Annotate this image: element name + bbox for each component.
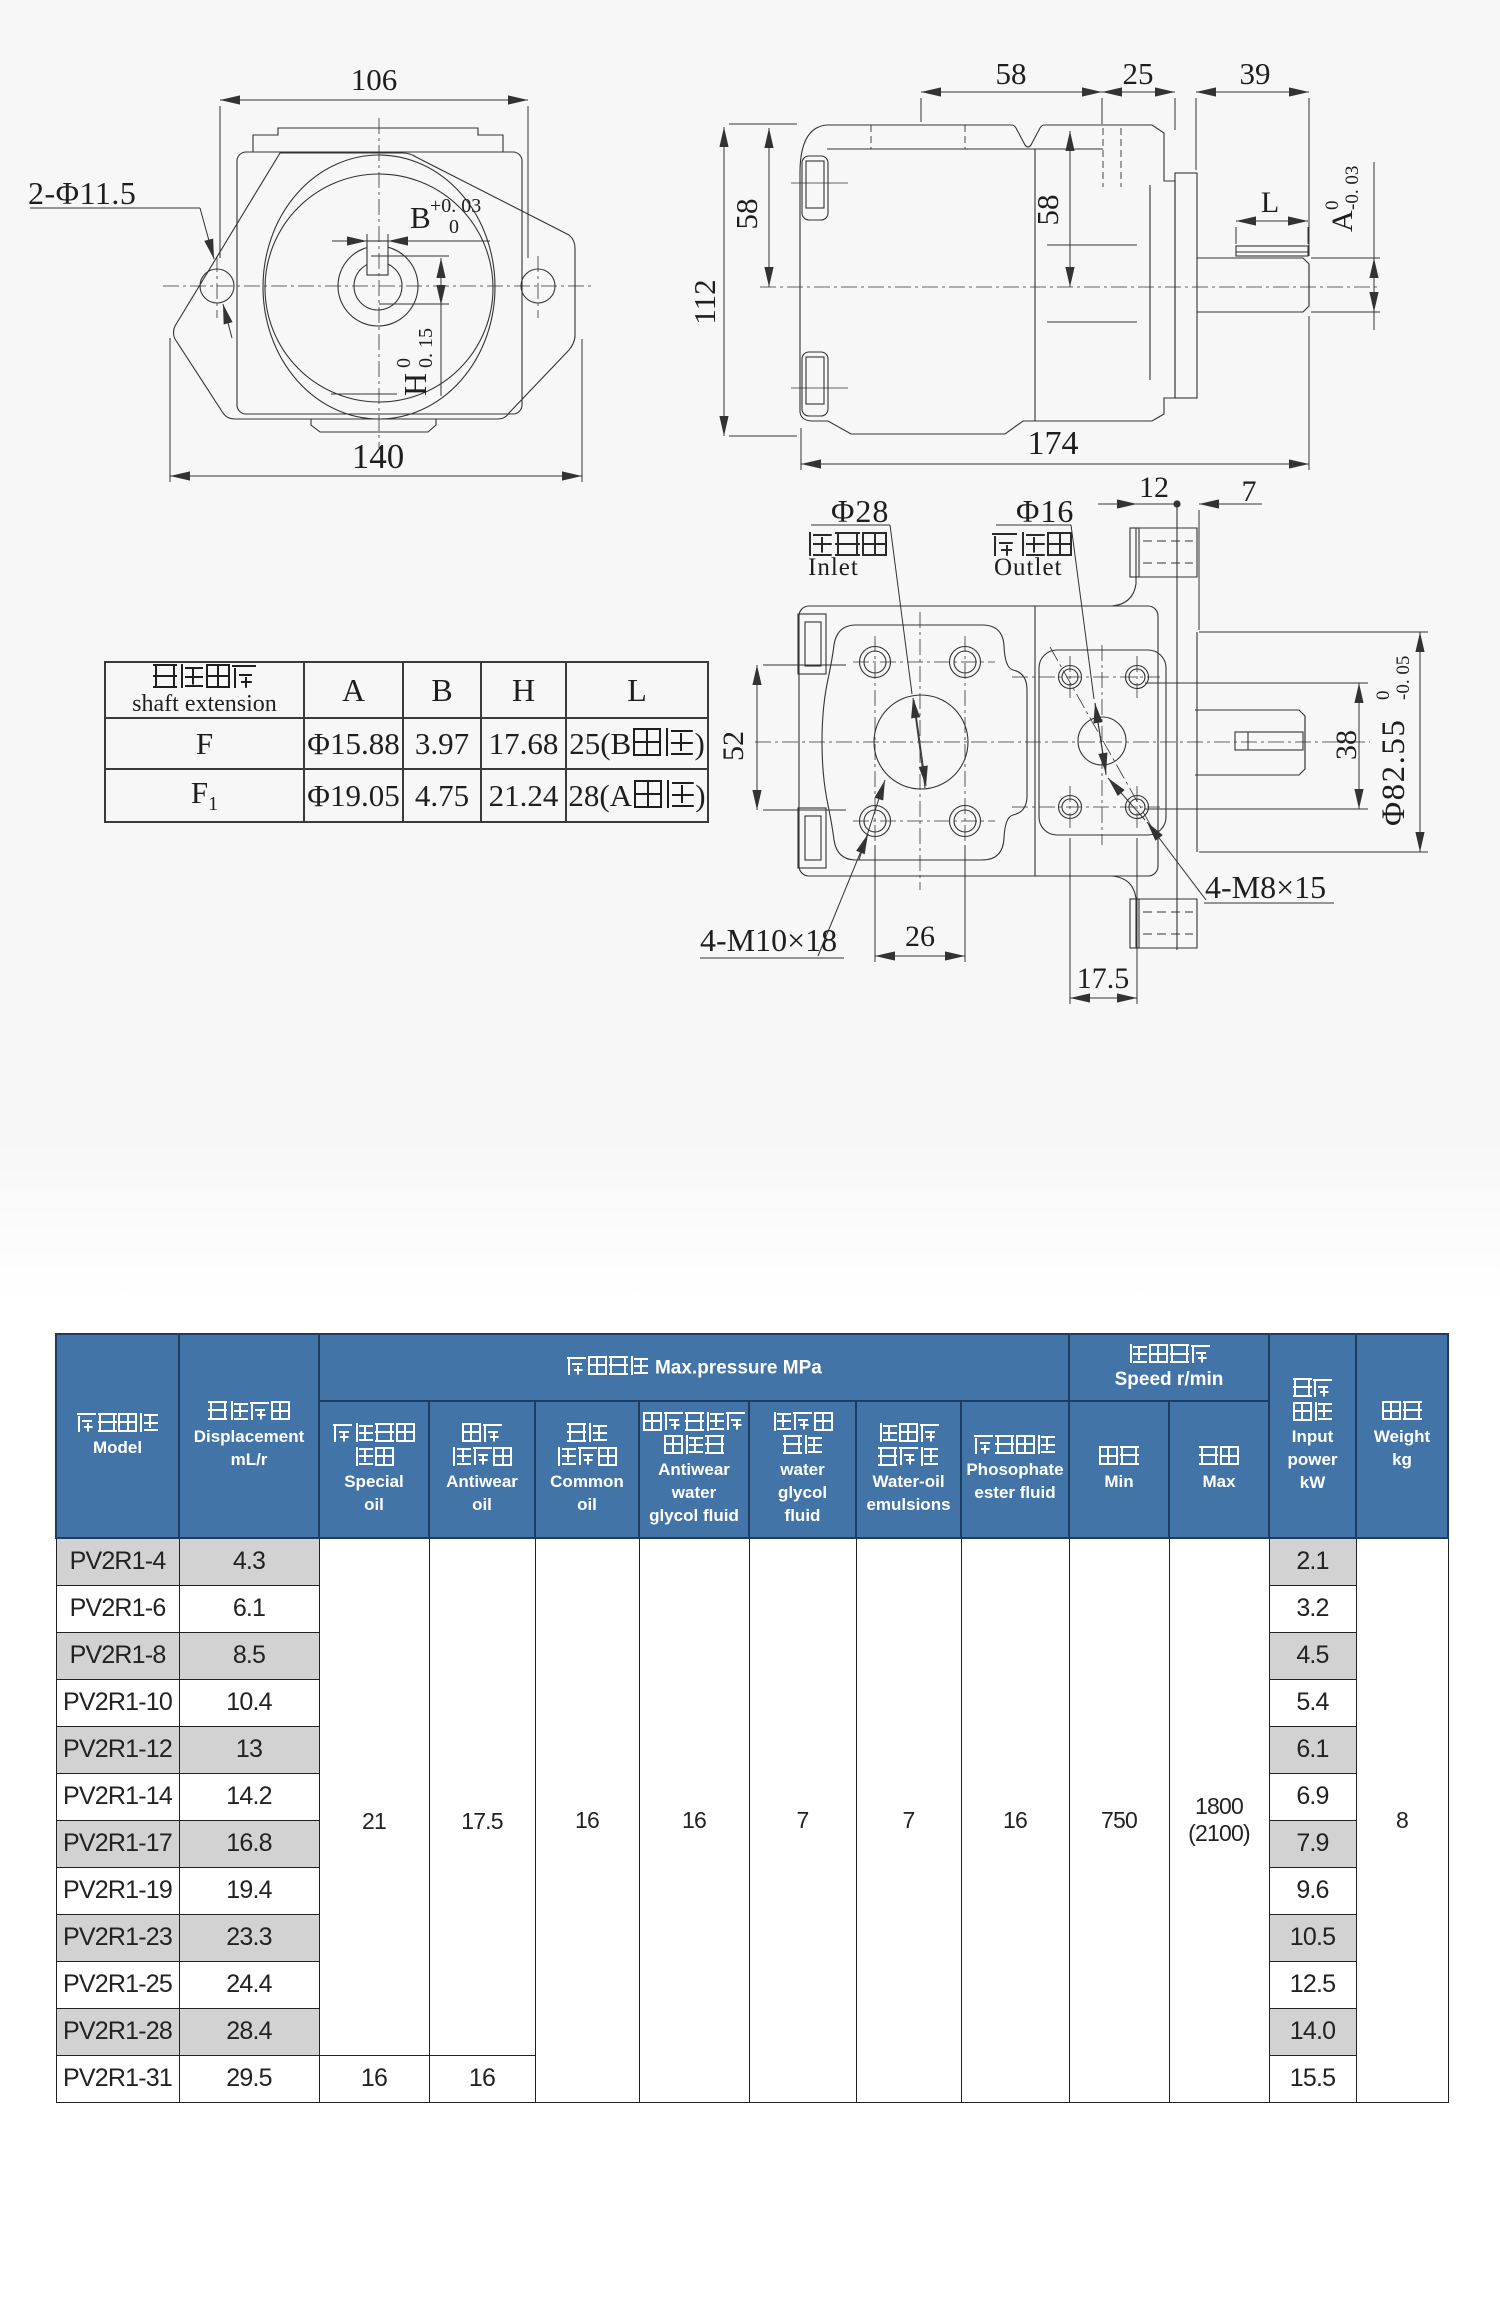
svg-text:106: 106 [351, 62, 398, 97]
svg-text:12: 12 [1139, 471, 1169, 504]
svg-text:Φ82.55: Φ82.55 [1376, 719, 1412, 826]
svg-text:112: 112 [687, 279, 722, 324]
svg-text:26: 26 [905, 920, 935, 953]
svg-text:58: 58 [1030, 195, 1065, 226]
svg-text:140: 140 [352, 437, 405, 476]
svg-text:+0. 03: +0. 03 [430, 195, 481, 217]
svg-text:A: A [1326, 210, 1359, 232]
svg-text:B: B [410, 200, 431, 235]
svg-text:0: 0 [449, 216, 459, 238]
svg-text:0. 15: 0. 15 [415, 328, 437, 368]
svg-text:Φ16: Φ16 [1016, 493, 1074, 529]
svg-text:39: 39 [1240, 56, 1271, 91]
svg-text:0: 0 [1322, 201, 1343, 211]
svg-text:17.5: 17.5 [1077, 962, 1130, 995]
svg-text:H: H [397, 373, 433, 396]
svg-text:4-M8×15: 4-M8×15 [1205, 869, 1326, 905]
svg-text:7: 7 [1242, 475, 1257, 508]
svg-text:58: 58 [996, 56, 1027, 91]
svg-text:52: 52 [717, 731, 750, 761]
svg-text:-0. 03: -0. 03 [1342, 166, 1363, 210]
svg-text:Φ28: Φ28 [831, 493, 889, 529]
svg-text:174: 174 [1028, 425, 1079, 462]
svg-text:4-M10×18: 4-M10×18 [700, 922, 837, 958]
svg-text:38: 38 [1330, 730, 1363, 760]
svg-text:0: 0 [393, 358, 415, 368]
svg-text:25: 25 [1123, 56, 1154, 91]
svg-text:0: 0 [1373, 691, 1394, 701]
svg-text:2-Φ11.5: 2-Φ11.5 [28, 175, 136, 211]
svg-text:58: 58 [729, 199, 764, 230]
svg-text:-0. 05: -0. 05 [1393, 656, 1414, 700]
svg-text:L: L [1261, 186, 1279, 219]
